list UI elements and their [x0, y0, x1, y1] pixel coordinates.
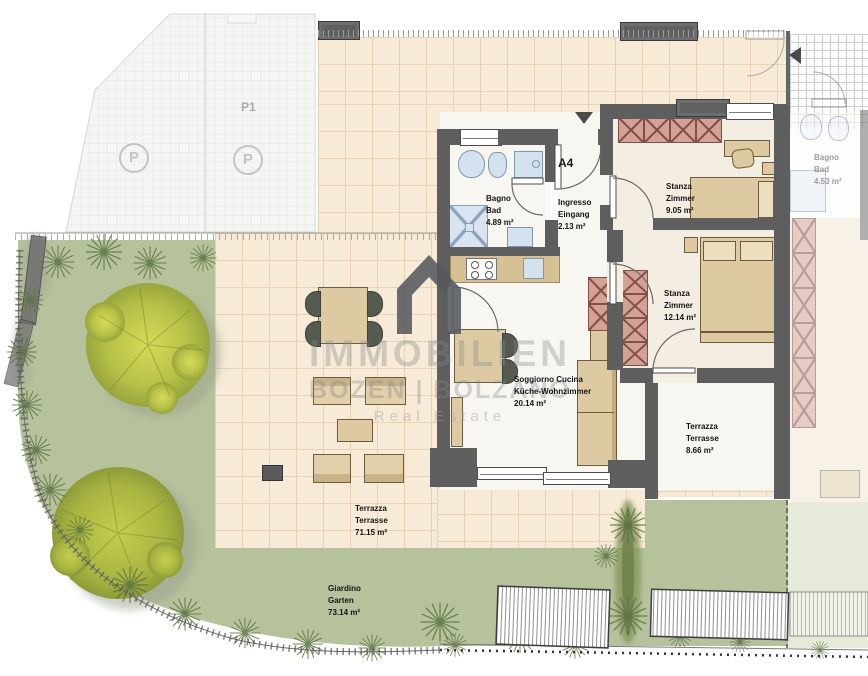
room-name-it: Ingresso [558, 197, 591, 209]
bedroom2-door-leaf [610, 262, 616, 304]
room-label-terrace-large: Terrazza Terrasse 71.15 m² [355, 503, 388, 539]
room-area: 12.14 m² [664, 312, 696, 324]
entrance-arrow-icon [575, 112, 593, 124]
room-name-it: Bagno [814, 152, 842, 164]
bathroom-door-arc [512, 184, 543, 215]
bedroom1-door-leaf [610, 176, 616, 218]
unit-label: A4 [558, 156, 573, 170]
room-label-bedroom2: Stanza Zimmer 12.14 m² [664, 288, 696, 324]
terrace-door-arc [653, 329, 695, 371]
room-area: 4.89 m² [486, 217, 514, 229]
room-name-de: Bad [814, 164, 842, 176]
room-name-de: Terrasse [686, 433, 719, 445]
room-area: 8.66 m² [686, 445, 719, 457]
room-name-it: Soggiorno Cucina [514, 374, 591, 386]
room-name-it: Stanza [666, 181, 695, 193]
watermark-brand-top: IMMOBILIEN [300, 333, 580, 375]
room-area: 9.05 m² [666, 205, 695, 217]
parking-space-label: P1 [241, 100, 256, 114]
room-area: 71.15 m² [355, 527, 388, 539]
room-label-garden: Giardino Garten 73.14 m² [328, 583, 361, 619]
room-name-it: Bagno [486, 193, 514, 205]
watermark-tagline: Real Estate [300, 408, 580, 425]
bedroom1-door-arc [613, 178, 653, 218]
room-area: 2.13 m² [558, 221, 591, 233]
room-name-de: Zimmer [666, 193, 695, 205]
floor-plan-canvas: P P P1 A4 IMMOBILIEN BOZEN | BOLZANO Rea… [0, 0, 868, 676]
room-name-de: Bad [486, 205, 514, 217]
room-name-it: Terrazza [686, 421, 719, 433]
gate-door-arc [747, 39, 784, 76]
room-name-de: Terrasse [355, 515, 388, 527]
terrace-door-leaf [653, 368, 695, 373]
room-area: 73.14 m² [328, 607, 361, 619]
room-label-bedroom1: Stanza Zimmer 9.05 m² [666, 181, 695, 217]
room-label-neighbor-bathroom: Bagno Bad 4.53 m² [814, 152, 842, 188]
room-label-entrance: Ingresso Eingang 2.13 m² [558, 197, 591, 233]
room-label-terrace-small: Terrazza Terrasse 8.66 m² [686, 421, 719, 457]
room-label-living: Soggiorno Cucina Küche-Wohnzimmer 20.14 … [514, 374, 591, 410]
room-name-it: Giardino [328, 583, 361, 595]
room-name-de: Eingang [558, 209, 591, 221]
room-name-it: Terrazza [355, 503, 388, 515]
room-name-de: Zimmer [664, 300, 696, 312]
room-label-bathroom: Bagno Bad 4.89 m² [486, 193, 514, 229]
room-name-it: Stanza [664, 288, 696, 300]
room-name-de: Garten [328, 595, 361, 607]
entrance-threshold [558, 129, 598, 145]
bathroom-door-leaf [512, 178, 543, 184]
immobilien-logo [385, 245, 475, 340]
room-area: 4.53 m² [814, 176, 842, 188]
entry-arrow-icon [789, 47, 801, 64]
room-area: 20.14 m² [514, 398, 591, 410]
room-name-de: Küche-Wohnzimmer [514, 386, 591, 398]
